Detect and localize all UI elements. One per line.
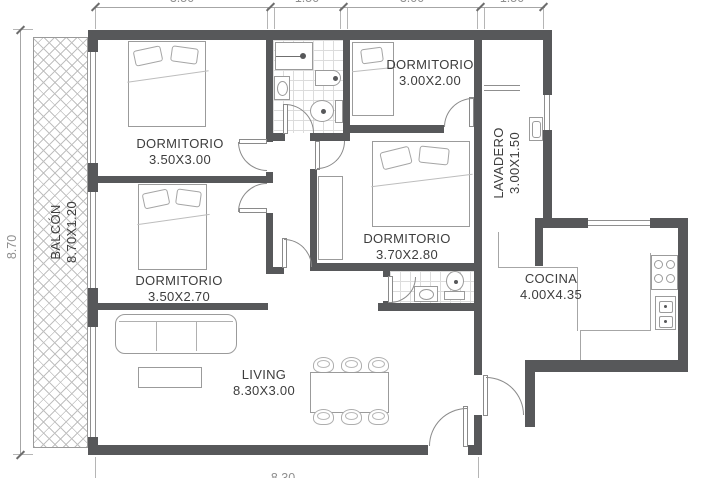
extension-line — [95, 457, 96, 478]
wall — [266, 40, 273, 142]
counter-edge — [580, 330, 651, 331]
wall — [88, 30, 552, 40]
dimension-label-bottom: 8.30 — [253, 471, 313, 478]
wall — [88, 445, 428, 455]
wall — [98, 176, 268, 183]
floor-boundary — [498, 232, 499, 268]
burner — [654, 274, 663, 283]
dimension-label-top-4: 1.50 — [482, 0, 542, 5]
room-label-dormitorio-3: DORMITORIO 3.00X2.00 — [355, 57, 505, 89]
extension-line — [274, 8, 275, 29]
toilet-drain — [454, 280, 458, 284]
wall — [525, 360, 535, 427]
blanket-fold — [137, 214, 209, 225]
burner — [666, 274, 675, 283]
room-size: 3.70X2.80 — [332, 247, 482, 263]
entrance-door-arc — [429, 408, 467, 446]
shower — [275, 42, 313, 70]
wall — [543, 130, 552, 222]
wall — [543, 218, 588, 228]
room-size: 3.50X3.00 — [105, 152, 255, 168]
toilet-drain — [321, 109, 326, 114]
room-label-lavadero: LAVADERO 3.00X1.50 — [491, 108, 525, 218]
door-arc — [486, 377, 524, 415]
window — [588, 220, 650, 226]
wall — [310, 133, 317, 141]
blanket-fold — [127, 70, 208, 82]
room-label-cocina: COCINA 4.00X4.35 — [476, 271, 626, 303]
toilet-tank — [335, 100, 343, 123]
room-size: 3.00X1.50 — [507, 108, 523, 218]
window — [90, 52, 96, 163]
burner — [666, 260, 675, 269]
floor-boundary — [498, 267, 578, 268]
dimension-label-top-2: 1.50 — [277, 0, 337, 5]
room-name: LIVING — [189, 367, 339, 383]
extension-line — [478, 457, 479, 478]
room-label-balcon: BALCÓN 8.70X1.20 — [48, 177, 82, 287]
room-size: 3.00X2.00 — [355, 73, 505, 89]
laundry-sink — [529, 117, 543, 141]
double-bed — [372, 141, 470, 227]
bidet — [315, 70, 341, 86]
room-name: DORMITORIO — [104, 273, 254, 289]
room-name: DORMITORIO — [355, 57, 505, 73]
room-label-dormitorio-4: DORMITORIO 3.70X2.80 — [332, 231, 482, 263]
wall — [310, 169, 317, 270]
room-name: COCINA — [476, 271, 626, 287]
wall — [266, 213, 273, 274]
room-name: DORMITORIO — [332, 231, 482, 247]
chair — [341, 357, 362, 373]
chair — [368, 409, 389, 425]
stove — [651, 255, 678, 290]
sofa-back-line — [119, 321, 233, 322]
washbasin — [414, 286, 438, 302]
pillow — [175, 188, 202, 207]
toilet-tank — [444, 291, 465, 300]
wall — [350, 125, 444, 133]
kitchen-sink — [655, 296, 676, 330]
dimension-tick — [16, 450, 25, 459]
window — [90, 327, 96, 437]
floor-plan: 3.50 1.50 3.00 1.50 8.70 8.30 — [0, 0, 720, 478]
pillow — [379, 146, 412, 171]
faucet-dot — [664, 305, 667, 308]
wall — [88, 288, 98, 327]
extension-line — [95, 8, 96, 29]
toilet-bowl — [310, 100, 334, 122]
door-arc — [444, 98, 473, 127]
wall — [266, 133, 285, 141]
wall — [266, 172, 273, 183]
basin-bowl — [277, 81, 288, 96]
extension-line — [543, 8, 544, 29]
pillow — [142, 188, 171, 209]
room-size: 8.70X1.20 — [64, 177, 80, 287]
room-label-dormitorio-1: DORMITORIO 3.50X3.00 — [105, 136, 255, 168]
room-size: 8.30X3.00 — [189, 383, 339, 399]
room-name: DORMITORIO — [105, 136, 255, 152]
extension-line — [13, 29, 33, 30]
room-name: BALCÓN — [48, 177, 64, 287]
room-size: 3.50X2.70 — [104, 289, 254, 305]
dimension-line-left — [20, 30, 21, 455]
double-bed — [128, 41, 206, 127]
wall — [266, 267, 284, 274]
wall — [343, 40, 350, 141]
toilet-bowl — [446, 271, 464, 291]
wall — [474, 415, 482, 455]
wall — [88, 163, 98, 192]
blanket-fold — [371, 174, 472, 187]
bidet-drain — [333, 76, 338, 81]
wall — [535, 218, 543, 266]
faucet-dot — [664, 320, 667, 323]
chair — [341, 409, 362, 425]
dimension-label-top-3: 3.00 — [382, 0, 442, 5]
room-size: 4.00X4.35 — [476, 287, 626, 303]
sofa-divider — [156, 322, 157, 351]
extension-line — [13, 454, 33, 455]
window — [90, 192, 96, 288]
wall — [525, 360, 688, 372]
chair — [368, 357, 389, 373]
basin-bowl — [419, 289, 434, 300]
room-label-living: LIVING 8.30X3.00 — [189, 367, 339, 399]
dimension-label-top-1: 3.50 — [152, 0, 212, 5]
wall — [678, 218, 688, 372]
wall — [310, 263, 480, 271]
door-arc — [284, 239, 312, 267]
pillow — [170, 45, 199, 65]
room-label-dormitorio-2: DORMITORIO 3.50X2.70 — [104, 273, 254, 305]
burner — [654, 260, 663, 269]
double-bed — [138, 184, 207, 270]
extension-line — [347, 8, 348, 29]
chair — [313, 409, 334, 425]
sofa — [115, 314, 237, 354]
wall — [543, 30, 552, 95]
pillow — [418, 145, 450, 165]
wall — [88, 30, 98, 52]
shower-head — [300, 53, 306, 59]
shower-arm — [276, 56, 302, 57]
room-name: LAVADERO — [491, 108, 507, 218]
window — [544, 95, 550, 130]
door-arc — [238, 183, 267, 212]
washbasin — [274, 76, 290, 100]
sink-basin — [532, 121, 541, 138]
sofa-divider — [196, 322, 197, 351]
pillow — [133, 45, 164, 66]
counter-edge — [580, 330, 581, 361]
wall — [378, 303, 480, 311]
door-arc — [317, 141, 345, 169]
dimension-label-left: 8.70 — [5, 227, 19, 267]
extension-line — [484, 8, 485, 29]
